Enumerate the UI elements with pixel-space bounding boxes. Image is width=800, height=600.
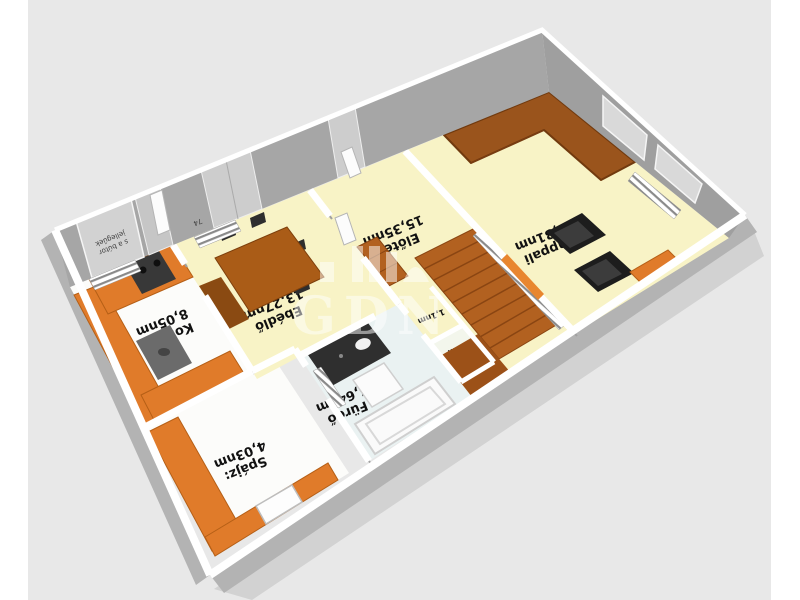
watermark-text: GDN <box>291 286 452 347</box>
kitchen-sink <box>158 348 170 356</box>
stove-burner <box>154 260 161 267</box>
floorplan-3d-scene: Konyha 8,05nm Spájz: 4,03nm Ebédlő 13,27… <box>0 0 800 600</box>
right-margin <box>771 0 800 600</box>
left-margin <box>0 0 28 600</box>
washer-dial <box>339 354 343 358</box>
floorplan-render: Konyha 8,05nm Spájz: 4,03nm Ebédlő 13,27… <box>0 0 800 600</box>
